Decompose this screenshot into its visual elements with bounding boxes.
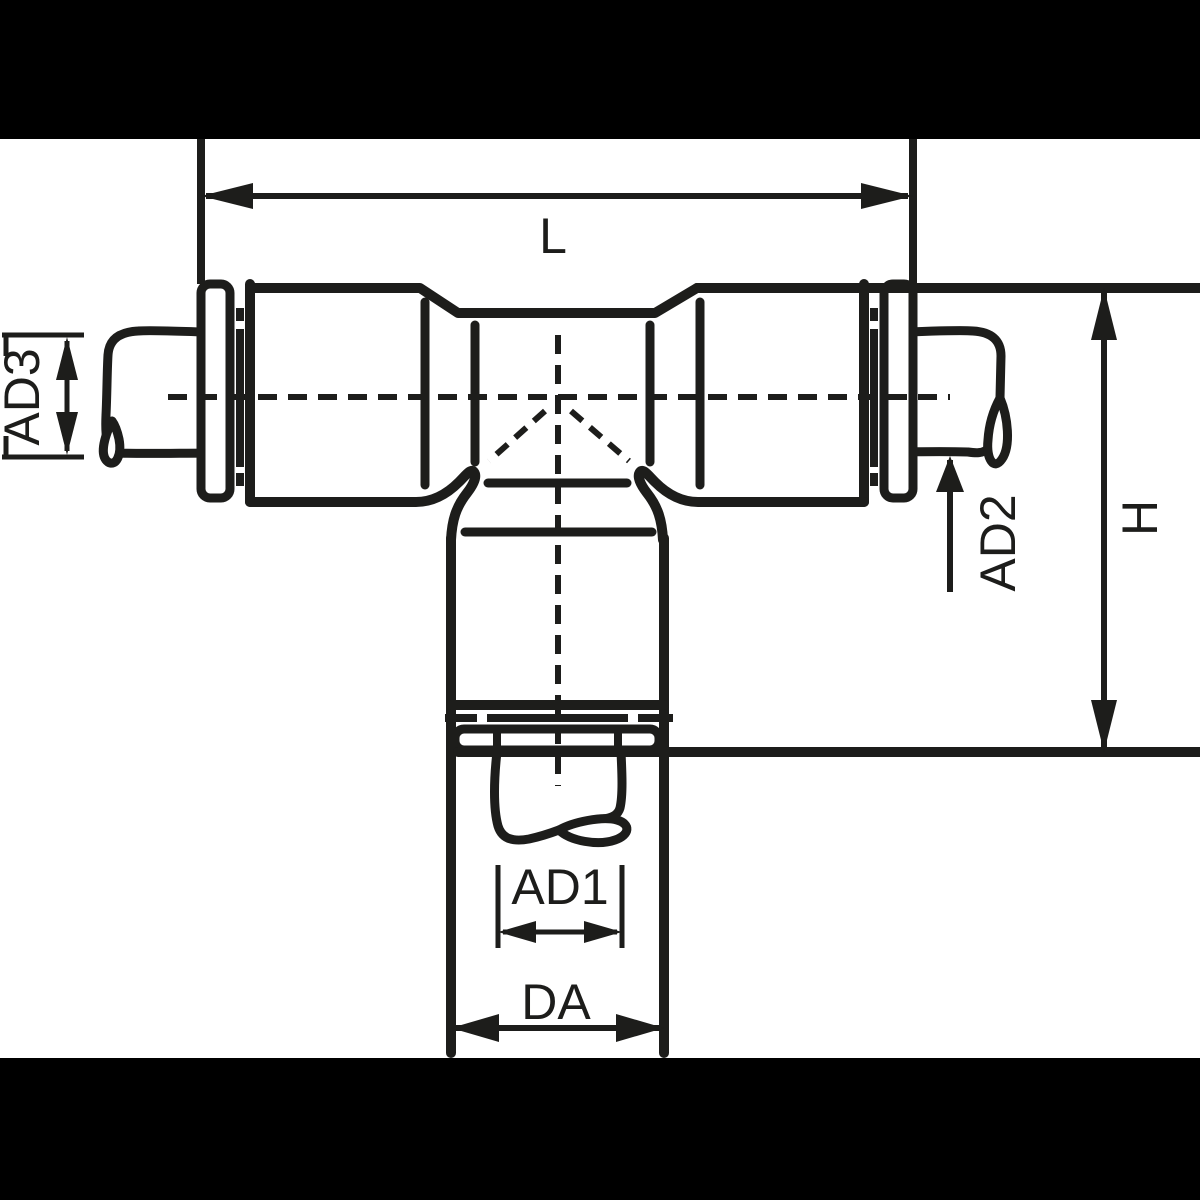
left-tube-curl (103, 421, 119, 463)
right-release-ring (884, 284, 913, 498)
label-DA: DA (521, 974, 591, 1030)
tee-fitting-figure: L H AD3 AD2 AD1 DA (0, 0, 1200, 1200)
top-mask-bar (0, 0, 1200, 139)
bottom-mask-bar (0, 1058, 1200, 1200)
bottom-tube-curl (559, 819, 627, 843)
drawing-canvas: L H AD3 AD2 AD1 DA (0, 0, 1200, 1200)
background (0, 0, 1200, 1200)
right-tube-curl (988, 398, 1008, 464)
label-H: H (1112, 500, 1168, 536)
label-L: L (539, 208, 567, 264)
label-AD2: AD2 (970, 494, 1026, 591)
left-release-ring (201, 284, 230, 498)
label-AD1: AD1 (511, 859, 608, 915)
label-AD3: AD3 (0, 348, 50, 445)
